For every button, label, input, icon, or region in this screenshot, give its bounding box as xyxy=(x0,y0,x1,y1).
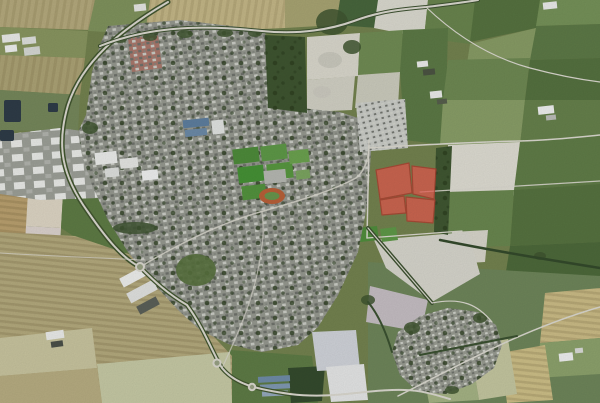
field-w-green1 xyxy=(0,27,88,58)
highlight-parcel-southeast[interactable] xyxy=(406,197,435,223)
farm-e3-barn xyxy=(546,114,556,120)
tree-row-n3 xyxy=(177,30,193,38)
roundabout-south-1 xyxy=(213,359,220,366)
tree-grove-ne2 xyxy=(343,40,361,54)
school-building xyxy=(263,169,286,184)
highlight-parcel-southwest[interactable] xyxy=(380,196,406,215)
roundabout-west xyxy=(136,263,144,271)
field-e-2 xyxy=(440,100,525,145)
map-layers xyxy=(0,0,600,403)
field-br-tan1 xyxy=(540,288,600,343)
farm-e2-roof xyxy=(430,90,443,98)
sports-court xyxy=(296,169,311,180)
field-e-6 xyxy=(510,184,600,246)
bigbox-store-1 xyxy=(94,151,117,165)
farm-e3-roof xyxy=(538,105,555,115)
farm-e1-barn xyxy=(423,68,436,75)
farm-se-roof xyxy=(559,352,574,361)
highlight-parcel-northeast[interactable] xyxy=(412,166,436,199)
field-bc-glass2 xyxy=(326,364,368,402)
field-bc-dark xyxy=(288,366,325,403)
field-ne-2 xyxy=(530,24,600,60)
farm-ne-roof xyxy=(543,1,558,9)
farm-e2-barn xyxy=(437,98,447,104)
field-ne-strip xyxy=(358,30,403,75)
village-trees-3 xyxy=(445,386,459,394)
farm-nw-roof xyxy=(134,3,147,11)
bigbox-store-4 xyxy=(105,167,120,177)
bigbox-store-2 xyxy=(120,157,139,169)
village-trees-1 xyxy=(404,322,420,334)
field-bc-glass1 xyxy=(312,330,360,371)
sports-pitch-1 xyxy=(232,146,260,164)
pond-industrial-3 xyxy=(0,130,14,141)
new-housing-estate xyxy=(356,99,408,152)
field-e-3 xyxy=(525,58,600,100)
pond-industrial-1 xyxy=(4,100,21,122)
town-park xyxy=(176,254,216,286)
soil-mottle-1 xyxy=(318,52,342,68)
nw-industrial-unit-2 xyxy=(22,36,37,44)
sports-pitch-2 xyxy=(260,143,288,161)
hedge-town xyxy=(113,222,157,234)
nw-industrial-unit-4 xyxy=(24,46,41,56)
satellite-map-canvas[interactable] xyxy=(0,0,600,403)
farm-e1-roof xyxy=(417,60,429,67)
red-roof-district xyxy=(128,35,162,72)
bigbox-store-3 xyxy=(142,169,159,181)
tree-clump-w xyxy=(82,122,98,134)
highlight-parcel-northwest[interactable] xyxy=(376,163,412,199)
farm-se-shed xyxy=(575,348,583,354)
field-nw-tan xyxy=(0,0,95,30)
sports-pitch-3 xyxy=(237,164,265,183)
woodland-ne xyxy=(265,35,307,113)
sports-pitch-5 xyxy=(288,149,309,164)
roundabout-south-2 xyxy=(249,384,255,390)
field-s-pitch2 xyxy=(380,227,398,242)
field-ne-green4 xyxy=(400,28,448,145)
white-industrial-unit xyxy=(211,119,224,134)
map-viewport xyxy=(0,0,600,403)
soil-mottle-2 xyxy=(313,86,331,98)
athletics-infield xyxy=(265,192,280,200)
pond-industrial-2 xyxy=(48,103,58,112)
nw-industrial-unit-3 xyxy=(5,44,18,52)
